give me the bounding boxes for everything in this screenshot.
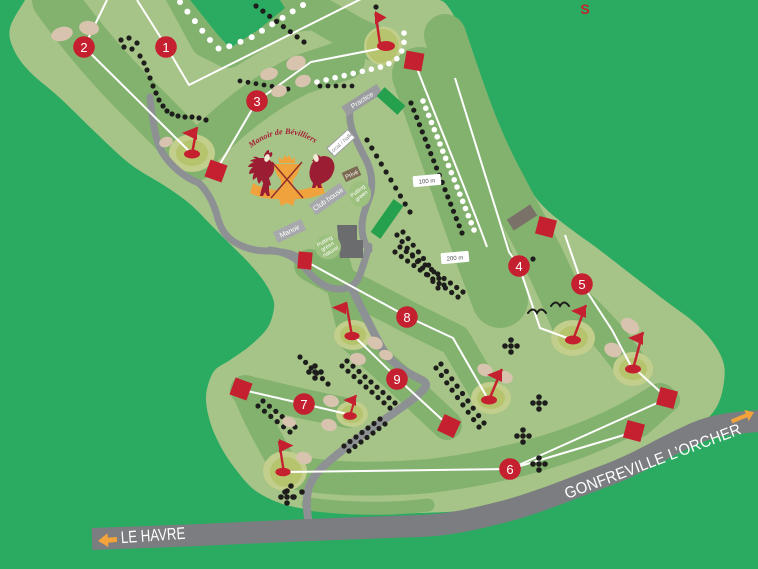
svg-text:7: 7 xyxy=(300,397,307,412)
svg-text:8: 8 xyxy=(403,310,410,325)
svg-text:9: 9 xyxy=(393,372,400,387)
svg-text:2: 2 xyxy=(80,40,87,55)
svg-text:5: 5 xyxy=(578,277,585,292)
svg-text:1: 1 xyxy=(162,40,169,55)
svg-text:3: 3 xyxy=(253,94,260,109)
svg-text:6: 6 xyxy=(506,462,513,477)
svg-text:4: 4 xyxy=(515,259,522,274)
svg-text:S: S xyxy=(580,1,589,17)
